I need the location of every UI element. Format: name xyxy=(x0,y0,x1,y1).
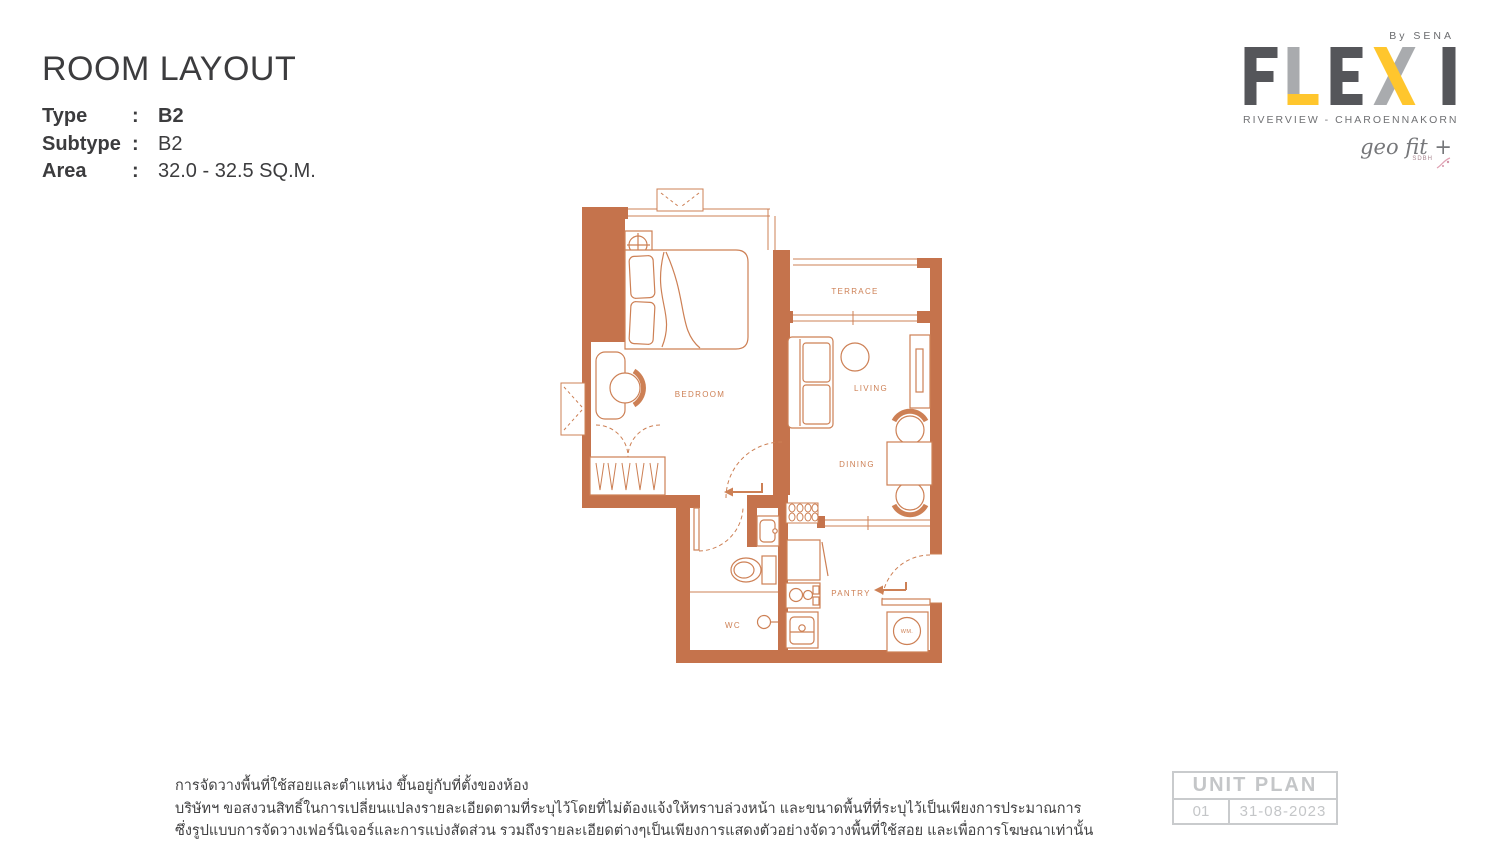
spec-colon: : xyxy=(132,131,158,159)
dining-chair xyxy=(896,416,924,444)
side-table xyxy=(841,343,869,371)
spec-value-area: 32.0 - 32.5 SQ.M. xyxy=(158,158,316,186)
spec-colon: : xyxy=(132,158,158,186)
disclaimer-line: บริษัทฯ ขอสงวนสิทธิ์ในการเปลี่ยนแปลงรายล… xyxy=(175,798,1093,821)
unit-plan-row: 01 31-08-2023 xyxy=(1174,800,1336,823)
spec-label: Area xyxy=(42,158,132,186)
room-label-terrace: TERRACE xyxy=(831,287,878,296)
room-layout-sheet: { "header": { "title": "ROOM LAYOUT", "s… xyxy=(0,0,1500,849)
brand-logo: By SENA FLEXI RIVERVIEW - CHAROENNAKORN … xyxy=(1243,30,1458,170)
disclaimer-line: ซึ่งรูปแบบการจัดวางเฟอร์นิเจอร์และการแบ่… xyxy=(175,820,1093,843)
ac-ledge-top xyxy=(657,189,703,211)
brand-byline: By SENA xyxy=(1243,30,1458,42)
unit-plan-title: UNIT PLAN xyxy=(1174,773,1336,800)
geofit-sub: SDBH xyxy=(1243,156,1458,170)
brand-name-text: FLEXI xyxy=(1243,42,1244,43)
dining-chair xyxy=(896,482,924,510)
geofit-ribbon-icon xyxy=(1436,156,1452,170)
brand-subtitle: RIVERVIEW - CHAROENNAKORN xyxy=(1243,114,1458,126)
unit-plan-number: 01 xyxy=(1174,800,1230,823)
flexi-wordmark-icon xyxy=(1243,47,1458,105)
spec-value-type: B2 xyxy=(158,103,184,131)
disclaimer: การจัดวางพื้นที่ใช้สอยและตำแหน่ง ขึ้นอยู… xyxy=(175,775,1093,843)
dining-set xyxy=(887,411,932,515)
spec-table: Type : B2 Subtype : B2 Area : 32.0 - 32.… xyxy=(42,103,316,186)
unit-plan-date: 31-08-2023 xyxy=(1230,800,1336,823)
toilet xyxy=(762,556,776,584)
room-label-living: LIVING xyxy=(854,384,888,393)
fridge xyxy=(787,540,820,580)
disclaimer-line: การจัดวางพื้นที่ใช้สอยและตำแหน่ง ขึ้นอยู… xyxy=(175,775,1093,798)
unit-plan-box: UNIT PLAN 01 31-08-2023 xyxy=(1172,771,1338,825)
floor-plan: BEDROOM TERRACE LIVING DINING PANTRY WC … xyxy=(540,175,970,685)
spec-row-type: Type : B2 xyxy=(42,103,316,131)
room-label-pantry: PANTRY xyxy=(831,589,871,598)
wc-fixtures xyxy=(690,508,779,629)
spec-label: Type xyxy=(42,103,132,131)
spec-row-area: Area : 32.0 - 32.5 SQ.M. xyxy=(42,158,316,186)
shoe-cabinet xyxy=(786,503,818,523)
spec-label: Subtype xyxy=(42,131,132,159)
shower-icon xyxy=(758,616,771,629)
dining-table xyxy=(887,442,932,485)
room-label-dining: DINING xyxy=(839,460,875,469)
spec-value-subtype: B2 xyxy=(158,131,182,159)
room-label-wm: WM. xyxy=(901,629,914,635)
wc-door-leaf xyxy=(694,508,699,550)
spec-colon: : xyxy=(132,103,158,131)
room-label-bedroom: BEDROOM xyxy=(675,390,725,399)
ac-ledge-left xyxy=(561,383,585,435)
living-furniture xyxy=(788,335,930,428)
geofit-logo: geo fit + xyxy=(1243,137,1458,157)
header: ROOM LAYOUT Type : B2 Subtype : B2 Area … xyxy=(42,50,316,186)
desk-chair xyxy=(610,373,640,403)
page-title: ROOM LAYOUT xyxy=(42,50,316,89)
geofit-tagline: SDBH xyxy=(1412,156,1433,162)
room-label-wc: WC xyxy=(725,621,741,630)
spec-row-subtype: Subtype : B2 xyxy=(42,131,316,159)
entrance-door xyxy=(874,555,930,605)
